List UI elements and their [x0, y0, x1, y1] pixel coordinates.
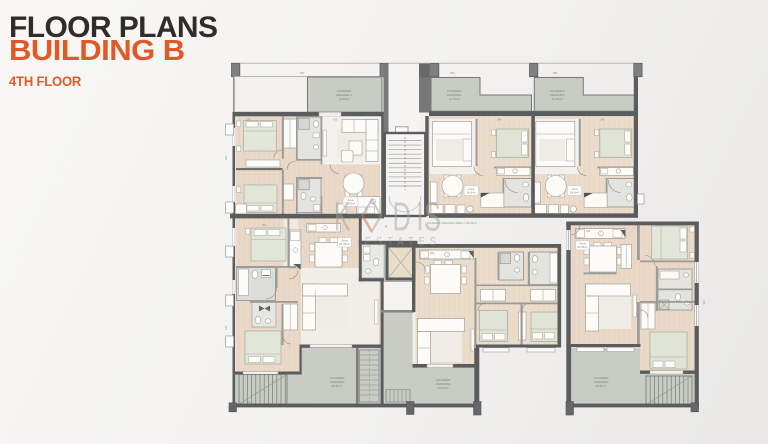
svg-text:D: D [393, 194, 411, 240]
svg-text:81.35m²: 81.35m² [339, 242, 349, 246]
svg-text:54.6m²: 54.6m² [467, 190, 476, 194]
svg-text:262: 262 [652, 400, 657, 404]
svg-text:12.75m²: 12.75m² [448, 97, 459, 101]
svg-text:90: 90 [384, 225, 388, 228]
svg-text:248: 248 [600, 118, 605, 122]
svg-text:282: 282 [586, 229, 591, 233]
svg-text:302: 302 [224, 155, 228, 160]
svg-text:550: 550 [450, 71, 455, 75]
svg-text:550: 550 [300, 71, 305, 75]
svg-text:ESTATES: ESTATES [365, 235, 441, 249]
svg-text:282: 282 [246, 400, 251, 404]
svg-text:302: 302 [262, 223, 267, 227]
svg-text:415: 415 [224, 325, 228, 330]
svg-text:410: 410 [333, 118, 338, 122]
svg-text:23.20m²: 23.20m² [595, 384, 606, 388]
svg-text:26.20m²: 26.20m² [331, 384, 342, 388]
svg-text:415: 415 [702, 300, 706, 305]
svg-text:248: 248 [497, 118, 502, 122]
svg-text:282: 282 [430, 251, 435, 255]
svg-text:54.6m²: 54.6m² [570, 190, 579, 194]
svg-text:24.20m²: 24.20m² [437, 386, 448, 390]
svg-text:I: I [417, 194, 424, 240]
svg-text:82.45m²: 82.45m² [577, 245, 587, 249]
svg-text:14.60m²: 14.60m² [338, 97, 349, 101]
svg-text:550: 550 [553, 71, 558, 75]
svg-text:12.84m²: 12.84m² [552, 97, 563, 101]
svg-text:K: K [334, 194, 351, 240]
svg-text:S: S [424, 194, 441, 240]
svg-text:240: 240 [246, 118, 251, 122]
